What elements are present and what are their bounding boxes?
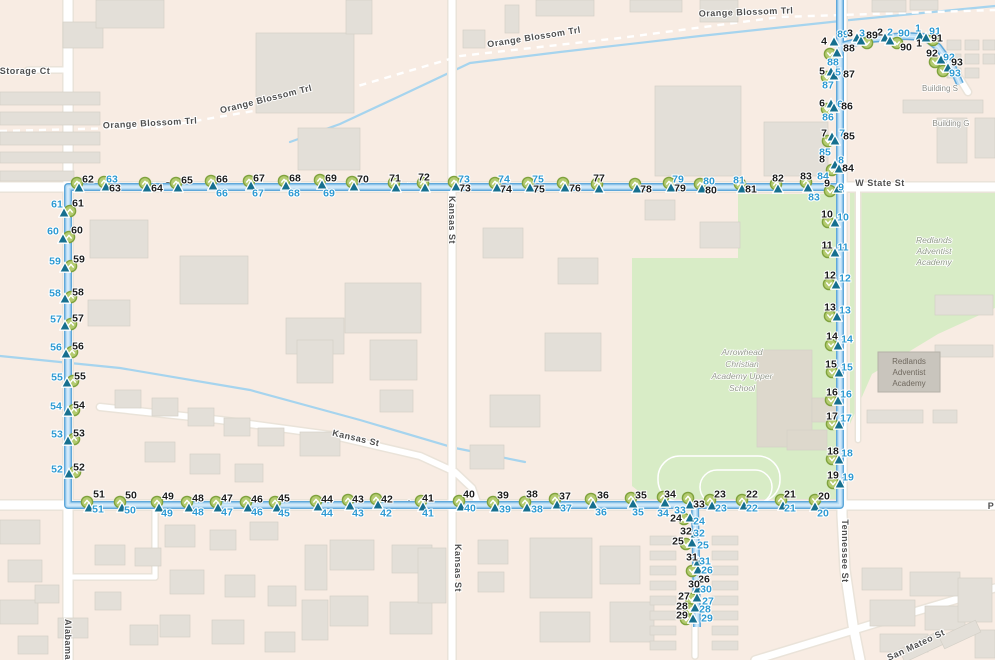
stop-label-blue: 66	[216, 188, 228, 200]
building	[152, 398, 178, 416]
stop-label-blue: 57	[50, 314, 62, 326]
rowhouse-building	[712, 536, 738, 545]
stop-label-blue: 54	[50, 401, 62, 413]
stop-label-black: 24	[670, 513, 682, 525]
stop-label-black: 40	[463, 489, 475, 501]
stop-label-blue: 13	[839, 305, 851, 317]
building	[418, 548, 446, 603]
building	[235, 464, 263, 482]
building	[630, 0, 682, 12]
stop-label-black: 61	[72, 198, 84, 210]
stop-label-black: 77	[593, 173, 605, 185]
stop-label-black: 19	[827, 470, 839, 482]
map-canvas[interactable]: W State StW State StOrange Ave1912903899…	[0, 0, 995, 660]
building	[302, 600, 328, 640]
building	[0, 92, 100, 105]
building	[903, 100, 983, 113]
stop-label-blue: 81	[733, 175, 745, 187]
building	[165, 525, 195, 547]
building	[645, 200, 675, 220]
stop-label-black: 90	[900, 42, 912, 54]
school-building	[787, 430, 827, 450]
stop-label-blue: 35	[632, 507, 644, 519]
building	[190, 454, 220, 474]
stop-label-blue: 32	[693, 528, 705, 540]
building	[530, 538, 592, 598]
building	[225, 575, 255, 597]
rowhouse-building	[712, 626, 738, 635]
rowhouse-building	[650, 566, 676, 575]
boxed-place-label: RedlandsAdventistAcademy	[878, 352, 940, 392]
place-label: Building S	[922, 84, 958, 93]
building	[947, 40, 961, 50]
stop-label-blue: 40	[464, 503, 476, 515]
stop-label-black: 66	[216, 174, 228, 186]
building	[95, 592, 121, 610]
street-label: Storage Ct	[0, 66, 50, 76]
stop-label-black: 73	[459, 183, 471, 195]
stop-label-blue: 34	[657, 508, 669, 520]
stop-label-blue: 38	[531, 504, 543, 516]
stop-label-blue: 51	[92, 504, 104, 516]
building	[965, 40, 979, 50]
stop-label-blue: 49	[161, 508, 173, 520]
stop-label-black: 39	[497, 490, 509, 502]
building	[170, 570, 204, 594]
stop-label-blue: 16	[840, 389, 852, 401]
stop-label-blue: 25	[697, 540, 709, 552]
stop-label-black: 37	[559, 491, 571, 503]
building	[95, 545, 125, 565]
stop-label-black: 92	[926, 48, 938, 60]
stop-label-black: 59	[73, 254, 85, 266]
stop-label-black: 42	[381, 494, 393, 506]
stop-label-black: 80	[705, 185, 717, 197]
stop-label-blue: 67	[252, 188, 264, 200]
stop-label-black: 15	[825, 359, 837, 371]
stop-label-black: 68	[289, 173, 301, 185]
stop-label-black: 41	[422, 493, 434, 505]
stop-label-blue: 11	[837, 242, 848, 254]
building	[265, 632, 295, 652]
stop-label-black: 49	[162, 491, 174, 503]
building	[975, 630, 995, 658]
stop-label-black: 82	[772, 173, 784, 185]
building	[330, 540, 374, 570]
stop-label-black: 20	[818, 491, 830, 503]
stop-label-black: 69	[325, 173, 337, 185]
stop-label-black: 64	[151, 183, 163, 195]
building	[18, 636, 48, 654]
stop-label-blue: 36	[595, 507, 607, 519]
stop-label-black: 89	[866, 30, 878, 42]
stop-label-blue: 3	[859, 28, 865, 40]
building	[305, 545, 327, 590]
building	[536, 0, 594, 16]
stop-label-black: 52	[73, 462, 85, 474]
stop-label-black: 12	[824, 270, 836, 282]
building	[115, 390, 141, 408]
stop-label-blue: 83	[808, 192, 820, 204]
stop-label-blue: 86	[822, 112, 834, 124]
building	[297, 340, 333, 383]
stop-label-blue: 21	[784, 503, 796, 515]
stop-label-black: 93	[951, 57, 963, 69]
stop-label-black: 83	[800, 171, 812, 183]
stop-label-black: 62	[82, 174, 94, 186]
building	[88, 300, 130, 326]
stop-label-blue: 24	[693, 516, 705, 528]
stop-label-black: 29	[676, 610, 688, 622]
stop-label-black: 58	[72, 287, 84, 299]
building	[35, 585, 59, 603]
stop-label-black: 47	[221, 493, 233, 505]
stop-label-black: 33	[693, 499, 705, 511]
building	[390, 602, 432, 634]
stop-label-blue: 37	[560, 503, 572, 515]
stop-label-black: 26	[698, 574, 710, 586]
building	[380, 390, 413, 412]
stop-label-blue: 23	[715, 503, 727, 515]
building	[983, 40, 995, 50]
stop-label-blue: 39	[499, 504, 511, 516]
stop-label-black: 86	[841, 101, 853, 113]
building	[96, 0, 164, 28]
stop-label-black: 4	[821, 36, 827, 48]
street-label: W State St	[855, 178, 905, 188]
stop-label-blue: 44	[321, 508, 333, 520]
stop-label-blue: 5	[835, 67, 841, 79]
street-label: Tennessee St	[840, 519, 850, 582]
place-label: Building G	[933, 119, 970, 128]
building	[463, 30, 485, 48]
stop-label-black: 85	[843, 131, 855, 143]
building	[250, 522, 278, 540]
building	[0, 600, 38, 624]
stop-label-blue: 47	[221, 507, 233, 519]
building	[478, 540, 508, 564]
stop-label-blue: 90	[898, 28, 910, 40]
stop-label-blue: 12	[839, 273, 851, 285]
stop-label-black: 22	[746, 489, 758, 501]
building	[135, 548, 161, 566]
stop-label-blue: 43	[352, 508, 364, 520]
svg-text:Building S: Building S	[922, 84, 958, 93]
building	[862, 568, 902, 590]
building	[545, 333, 601, 371]
stop-label-black: 51	[93, 489, 105, 501]
stop-label-blue: 59	[49, 256, 61, 268]
stop-label-black: 14	[826, 331, 838, 343]
building	[975, 118, 995, 158]
street-label: Kansas St	[453, 544, 463, 592]
stop-label-blue: 41	[422, 508, 434, 520]
building	[470, 445, 504, 469]
stop-label-black: 36	[597, 490, 609, 502]
stop-label-black: 91	[931, 33, 943, 45]
building	[872, 0, 906, 12]
building	[345, 283, 421, 333]
rowhouse-building	[712, 611, 738, 620]
stop-label-blue: 52	[51, 464, 63, 476]
stop-label-blue: 29	[701, 613, 713, 625]
svg-text:Academy: Academy	[915, 257, 952, 267]
stop-label-black: 45	[278, 493, 290, 505]
stop-label-blue: 61	[51, 199, 63, 211]
stop-label-black: 72	[418, 172, 430, 184]
svg-text:School: School	[729, 383, 756, 393]
building	[224, 418, 250, 436]
stop-label-black: 63	[109, 183, 121, 195]
rowhouse-building	[650, 581, 676, 590]
stop-label-blue: 50	[124, 505, 136, 517]
stop-label-black: 18	[827, 446, 839, 458]
stop-label-blue: 60	[47, 226, 59, 238]
stop-label-blue: 10	[837, 212, 849, 224]
stop-label-blue: 31	[699, 556, 711, 568]
stop-label-blue: 19	[842, 472, 854, 484]
rowhouse-building	[712, 641, 738, 650]
stop-label-black: 65	[181, 175, 193, 187]
stop-label-blue: 55	[51, 372, 63, 384]
building	[0, 171, 74, 181]
svg-text:Redlands: Redlands	[892, 357, 926, 366]
stop-label-black: 74	[500, 184, 512, 196]
stop-label-blue: 9	[838, 182, 844, 194]
rowhouse-building	[650, 596, 676, 605]
stop-label-black: 8	[819, 154, 825, 166]
stop-label-black: 76	[569, 183, 581, 195]
building	[910, 572, 960, 596]
rowhouse-building	[712, 566, 738, 575]
stop-label-black: 87	[843, 69, 855, 81]
stop-label-blue: 58	[49, 288, 61, 300]
stop-label-black: 7	[821, 128, 827, 140]
stop-label-black: 55	[74, 371, 86, 383]
rowhouse-building	[712, 596, 738, 605]
svg-text:Christian: Christian	[725, 359, 759, 369]
stop-label-black: 70	[357, 174, 369, 186]
building	[130, 625, 158, 645]
svg-text:Arrowhead: Arrowhead	[720, 347, 762, 357]
stop-label-black: 38	[526, 489, 538, 501]
building	[558, 258, 598, 284]
street-label: Alabama St	[63, 619, 73, 660]
stop-label-black: 81	[745, 184, 757, 196]
building	[330, 596, 368, 626]
rowhouse-building	[712, 581, 738, 590]
building	[935, 345, 993, 357]
building	[540, 612, 590, 642]
stop-label-black: 10	[821, 209, 833, 221]
building	[90, 220, 148, 258]
building	[8, 560, 42, 582]
stop-label-black: 43	[352, 494, 364, 506]
stop-label-black: 6	[819, 98, 825, 110]
svg-text:Building G: Building G	[933, 119, 970, 128]
building	[983, 54, 995, 64]
stop-label-black: 71	[389, 173, 401, 185]
stop-label-blue: 46	[251, 507, 263, 519]
building	[965, 68, 979, 78]
svg-text:Academy: Academy	[892, 379, 925, 388]
building	[145, 442, 175, 462]
building	[268, 586, 296, 606]
svg-text:Academy Upper: Academy Upper	[711, 371, 774, 381]
rowhouse-building	[712, 551, 738, 560]
stop-label-blue: 45	[278, 508, 290, 520]
stop-label-blue: 20	[817, 508, 829, 520]
stop-label-black: 48	[192, 493, 204, 505]
stop-label-black: 3	[847, 28, 853, 40]
stop-label-black: 57	[72, 313, 84, 325]
map-viewport[interactable]: W State StW State StOrange Ave1912903899…	[0, 0, 995, 660]
stop-label-black: 31	[686, 552, 698, 564]
building	[370, 340, 417, 380]
stop-label-black: 34	[664, 489, 676, 501]
stop-label-blue: 48	[192, 507, 204, 519]
building	[212, 620, 244, 644]
street-label: P	[988, 501, 995, 511]
stop-label-black: 46	[251, 494, 263, 506]
building	[867, 410, 923, 423]
stop-label-black: 2	[877, 27, 883, 39]
stop-label-black: 44	[321, 494, 333, 506]
stop-label-blue: 17	[840, 413, 852, 425]
building	[610, 602, 654, 642]
building	[700, 222, 740, 248]
building	[600, 546, 640, 584]
building	[298, 128, 360, 170]
rowhouse-building	[650, 611, 676, 620]
building	[346, 0, 372, 34]
stop-label-black: 30	[688, 579, 700, 591]
stop-label-black: 5	[819, 66, 825, 78]
stop-label-black: 60	[71, 225, 83, 237]
building	[180, 256, 248, 304]
building	[870, 600, 915, 626]
stop-label-black: 32	[680, 526, 692, 538]
stop-label-blue: 22	[746, 503, 758, 515]
building	[258, 428, 284, 446]
stop-label-black: 35	[635, 490, 647, 502]
svg-text:Redlands: Redlands	[916, 235, 953, 245]
building	[958, 578, 992, 622]
stop-label-black: 84	[842, 163, 854, 175]
building	[655, 86, 741, 176]
rowhouse-building	[650, 641, 676, 650]
building	[483, 228, 523, 258]
building	[0, 152, 100, 163]
building	[0, 112, 100, 125]
rowhouse-building	[650, 551, 676, 560]
stop-label-blue: 68	[288, 188, 300, 200]
stop-label-blue: 69	[323, 188, 335, 200]
stop-label-blue: 93	[949, 68, 961, 80]
stop-label-black: 1	[916, 38, 922, 50]
building	[478, 572, 504, 592]
stop-label-blue: 18	[841, 448, 853, 460]
stop-label-blue: 56	[50, 342, 62, 354]
building	[933, 410, 957, 423]
building	[490, 395, 540, 427]
svg-text:Adventist: Adventist	[916, 246, 953, 256]
stop-label-blue: 2	[887, 27, 893, 39]
building	[910, 0, 938, 10]
stop-label-black: 88	[843, 43, 855, 55]
place-label: RedlandsAdventistAcademy	[915, 235, 952, 267]
stop-label-black: 21	[784, 489, 796, 501]
stop-label-blue: 1	[915, 23, 921, 35]
stop-label-black: 54	[73, 400, 85, 412]
stop-label-black: 9	[824, 178, 830, 190]
stop-label-black: 67	[253, 173, 265, 185]
building	[0, 520, 40, 544]
stop-label-black: 11	[821, 240, 832, 252]
street-label: Kansas St	[447, 196, 457, 244]
svg-text:Adventist: Adventist	[893, 368, 927, 377]
stop-label-black: 53	[73, 428, 85, 440]
stop-label-black: 78	[640, 184, 652, 196]
rowhouse-building	[650, 626, 676, 635]
stop-label-black: 17	[826, 411, 838, 423]
building	[935, 295, 993, 315]
stop-label-blue: 42	[380, 508, 392, 520]
stop-label-black: 23	[714, 489, 726, 501]
stop-label-black: 79	[674, 183, 686, 195]
stop-label-blue: 87	[822, 80, 834, 92]
building	[965, 54, 979, 64]
building	[160, 615, 190, 637]
building	[188, 408, 214, 426]
building	[0, 132, 100, 145]
stop-label-blue: 53	[51, 429, 63, 441]
stop-label-black: 16	[826, 387, 838, 399]
stop-label-blue: 15	[841, 362, 853, 374]
stop-label-blue: 14	[841, 334, 853, 346]
building	[505, 5, 519, 33]
stop-label-black: 75	[533, 184, 545, 196]
stop-label-black: 13	[824, 302, 836, 314]
building	[210, 530, 236, 550]
stop-label-black: 56	[72, 341, 84, 353]
stop-label-black: 50	[125, 490, 137, 502]
